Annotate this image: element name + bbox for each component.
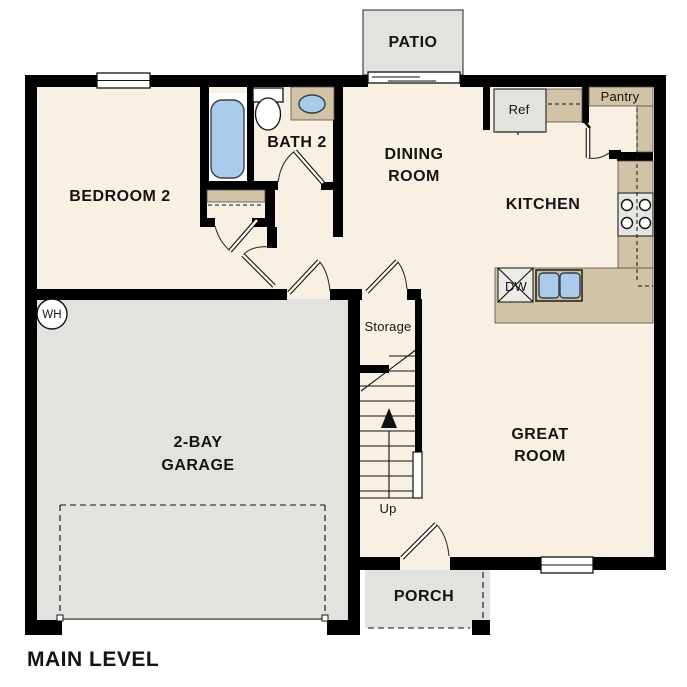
- porch-post: [472, 620, 490, 635]
- wall-closet-stub-left: [200, 218, 215, 227]
- wall-top-right: [460, 75, 666, 87]
- sink-basin-right: [560, 273, 580, 298]
- sink-basin-left: [539, 273, 559, 298]
- patio-label: PATIO: [388, 34, 437, 51]
- kitchen-label: KITCHEN: [506, 196, 581, 213]
- porch-label: PORCH: [394, 588, 454, 605]
- great-room-label-line1: GREAT: [511, 426, 568, 443]
- garage-label-line1: 2-BAY: [173, 434, 222, 451]
- toilet-bowl: [256, 98, 281, 130]
- dw-label: DW: [505, 279, 528, 294]
- kitchen-sink: [536, 270, 582, 301]
- wh-label: WH: [42, 309, 62, 321]
- closet-shelf: [207, 190, 265, 202]
- burner-icon: [640, 218, 651, 229]
- bedroom-window: [97, 73, 150, 88]
- floor-plan: WH: [0, 0, 687, 687]
- wall-bottom-b: [450, 557, 541, 570]
- up-label: Up: [379, 501, 396, 516]
- dining-label-line1: DINING: [385, 146, 444, 163]
- burner-icon: [622, 218, 633, 229]
- wall-left: [25, 75, 37, 635]
- stair-railing: [413, 452, 422, 498]
- wall-closet-right: [265, 188, 275, 218]
- wall-right: [654, 75, 666, 570]
- wall-garage-top-a: [37, 289, 287, 300]
- counter-beside-ref: [546, 89, 582, 122]
- wall-bedroom-bath: [200, 87, 209, 183]
- storage-label: Storage: [365, 319, 412, 334]
- wall-pantry-south: [617, 152, 653, 161]
- great-room-window: [541, 557, 593, 573]
- wall-pantry-jamb: [609, 150, 621, 159]
- wall-stair-right: [415, 299, 422, 452]
- stove: [618, 193, 653, 236]
- wall-garage-top-c: [407, 289, 421, 300]
- ref-label: Ref: [509, 102, 530, 117]
- wall-bottom-a: [358, 557, 400, 570]
- bath2-label: BATH 2: [267, 134, 327, 151]
- wall-pantry-left: [582, 87, 589, 123]
- wall-ref-stub: [483, 87, 490, 130]
- pantry-shelf-right: [637, 106, 653, 152]
- toilet: [253, 88, 283, 130]
- wall-top-left: [25, 75, 368, 87]
- wall-garage-bottom-left: [25, 620, 62, 635]
- burner-icon: [640, 200, 651, 211]
- wall-bedroom-door: [267, 227, 277, 248]
- wall-garage-top-b: [330, 289, 362, 300]
- wall-storage-divider: [358, 365, 389, 373]
- vanity-basin: [299, 95, 325, 113]
- floor-plan-canvas: WH: [0, 0, 687, 687]
- wall-garage-right: [348, 299, 360, 632]
- great-room-label-line2: ROOM: [514, 448, 566, 465]
- garage-label-line2: GARAGE: [161, 457, 234, 474]
- bedroom2-label: BEDROOM 2: [69, 188, 170, 205]
- wall-bath-door-jamb: [321, 182, 333, 190]
- plan-title: MAIN LEVEL: [27, 648, 159, 671]
- garage-door-track-right: [322, 615, 328, 621]
- bathtub: [211, 100, 244, 178]
- patio-sliding-door: [368, 72, 460, 83]
- water-heater: WH: [37, 299, 67, 329]
- burner-icon: [622, 200, 633, 211]
- wall-bath-dining: [333, 87, 343, 237]
- garage-door-track-left: [57, 615, 63, 621]
- pantry-label: Pantry: [601, 89, 640, 104]
- dining-label-line2: ROOM: [388, 168, 440, 185]
- wall-bottom-c: [593, 557, 666, 570]
